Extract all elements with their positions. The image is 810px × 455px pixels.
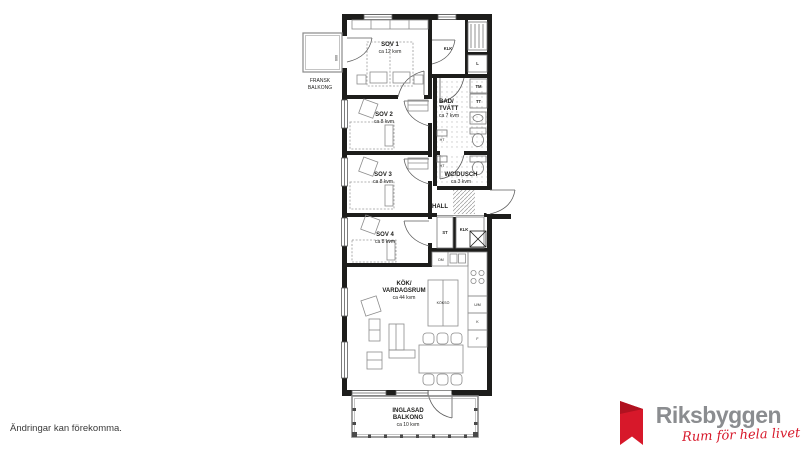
- room-label-kok-1: KÖK/: [397, 280, 412, 287]
- room-area-sov3: ca 8 kvm: [373, 179, 393, 185]
- floorplan-page: SOV 1 ca 12 kvm SOV 2 ca 8 kvm SOV 3 ca …: [0, 0, 810, 455]
- room-label-inglasad-1: INGLASAD: [392, 408, 424, 414]
- room-label-inglasad-2: BALKONG: [393, 415, 424, 421]
- label-oven-micro: U/M: [474, 303, 481, 307]
- brand-tagline: Rum för hela livet: [681, 425, 800, 444]
- room-label-sov2: SOV 2: [375, 112, 393, 118]
- room-label-fransk-1: FRANSK: [310, 78, 331, 84]
- room-area-wc: ca 3 kvm: [451, 179, 471, 185]
- room-label-sov3: SOV 3: [374, 172, 392, 178]
- room-area-kok: ca 44 kvm: [393, 295, 416, 301]
- room-label-sov4: SOV 4: [376, 232, 394, 238]
- walls-layer: [342, 14, 511, 396]
- label-fridge: K: [476, 320, 479, 324]
- label-towel-dryer-wc: HT: [440, 164, 446, 168]
- riksbyggen-logo-text: Riksbyggen Rum för hela livet: [656, 404, 800, 443]
- room-area-sov1: ca 12 kvm: [379, 49, 402, 55]
- disclaimer-text: Ändringar kan förekomma.: [10, 423, 122, 434]
- room-label-fransk-2: BALKONG: [308, 85, 332, 91]
- label-kitchen-island: KÖKSÖ: [437, 301, 450, 305]
- label-linen-closet: L: [476, 61, 479, 66]
- label-klk-hall: KLK: [460, 227, 469, 232]
- label-dryer: TT: [476, 99, 482, 104]
- label-dishwasher: DM: [438, 258, 444, 262]
- label-klk-top: KLK: [444, 46, 453, 51]
- room-label-sov1: SOV 1: [381, 42, 399, 48]
- room-label-bad-2: TVÄTT: [439, 105, 459, 112]
- room-label-bad-1: BAD/: [439, 99, 454, 105]
- room-area-sov4: ca 8 kvm: [375, 239, 395, 245]
- label-washer: TM: [475, 84, 482, 89]
- label-freezer: F: [476, 337, 479, 341]
- riksbyggen-logo: Riksbyggen Rum för hela livet: [615, 399, 800, 447]
- room-label-wc: WC/DUSCH: [445, 172, 478, 178]
- room-area-bad: ca 7 kvm: [439, 113, 459, 119]
- room-area-inglasad: ca 10 kvm: [397, 422, 420, 428]
- room-area-sov2: ca 8 kvm: [374, 119, 394, 125]
- riksbyggen-logo-mark: [615, 399, 647, 447]
- label-towel-dryer-bad: HT: [440, 138, 446, 142]
- floor-plan-drawing: SOV 1 ca 12 kvm SOV 2 ca 8 kvm SOV 3 ca …: [0, 0, 810, 455]
- room-label-hall: HALL: [432, 204, 448, 210]
- room-label-kok-2: VARDAGSRUM: [382, 288, 425, 294]
- label-st-closet: ST: [442, 230, 448, 235]
- brand-name: Riksbyggen: [656, 404, 781, 427]
- label-balcony-dim: 600: [335, 55, 339, 61]
